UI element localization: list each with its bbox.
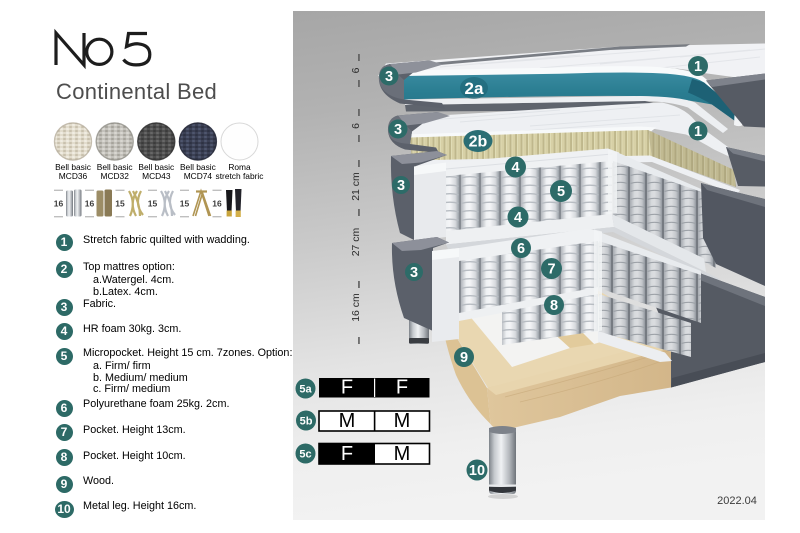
svg-text:1: 1 [694, 59, 702, 75]
svg-text:6: 6 [350, 123, 362, 129]
svg-text:6: 6 [350, 67, 362, 73]
svg-text:16: 16 [54, 199, 64, 209]
svg-text:15: 15 [115, 199, 125, 209]
svg-text:3: 3 [385, 69, 393, 85]
svg-text:15: 15 [180, 199, 190, 209]
svg-text:5a: 5a [299, 384, 312, 396]
svg-text:M: M [339, 410, 356, 432]
svg-text:21 cm: 21 cm [350, 172, 362, 201]
svg-text:F: F [341, 377, 353, 399]
svg-text:8: 8 [550, 298, 558, 314]
svg-text:5: 5 [557, 184, 565, 200]
svg-text:5c: 5c [299, 449, 311, 461]
svg-text:16: 16 [85, 199, 95, 209]
svg-text:27 cm: 27 cm [350, 227, 362, 256]
svg-text:M: M [394, 443, 411, 465]
svg-text:F: F [396, 377, 408, 399]
svg-text:10: 10 [469, 463, 485, 479]
svg-text:2b: 2b [469, 134, 488, 151]
svg-text:4: 4 [514, 210, 522, 226]
svg-text:F: F [341, 443, 353, 465]
svg-text:6: 6 [517, 241, 525, 257]
svg-text:2a: 2a [465, 79, 484, 98]
svg-text:5b: 5b [300, 416, 313, 428]
svg-text:1: 1 [694, 124, 702, 140]
svg-text:3: 3 [394, 122, 402, 138]
svg-text:7: 7 [547, 262, 555, 278]
svg-text:2022.04: 2022.04 [717, 495, 757, 507]
svg-text:3: 3 [397, 178, 405, 194]
svg-text:16: 16 [212, 199, 222, 209]
svg-text:9: 9 [460, 350, 468, 366]
svg-text:4: 4 [511, 160, 519, 176]
svg-text:16 cm: 16 cm [350, 293, 362, 322]
svg-text:15: 15 [148, 199, 158, 209]
svg-text:3: 3 [410, 265, 418, 281]
svg-text:M: M [394, 410, 411, 432]
